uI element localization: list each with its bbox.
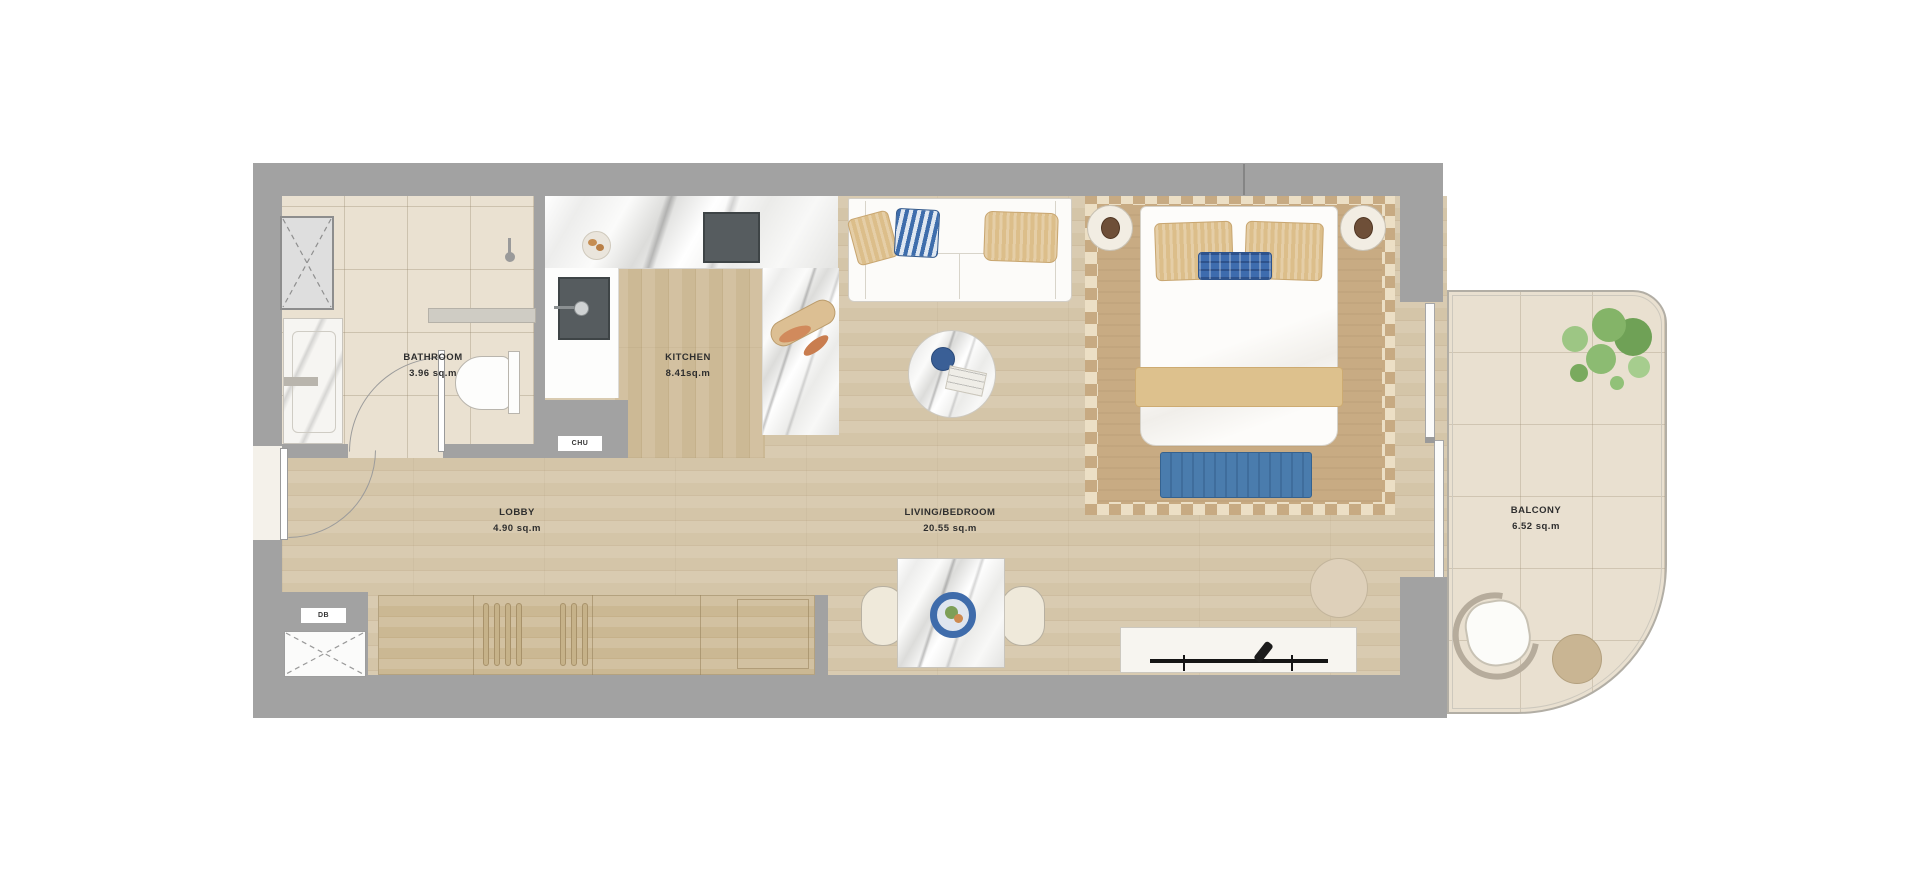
- shower: [283, 318, 343, 444]
- chu-label-text: CHU: [572, 440, 589, 447]
- nightstand: [1340, 205, 1386, 251]
- bed-plaid-pillow: [1198, 252, 1272, 280]
- vase-icon: [1101, 217, 1120, 239]
- balcony-side-table: [1552, 634, 1602, 684]
- room-area: 3.96 sq.m: [367, 366, 499, 382]
- shaft-cross-icon: [285, 632, 364, 675]
- wardrobe-divider: [473, 595, 474, 675]
- vanity-shelf: [428, 308, 536, 323]
- room-label-bathroom: BATHROOM 3.96 sq.m: [367, 350, 499, 381]
- wardrobe-divider: [592, 595, 593, 675]
- vase-icon: [1354, 217, 1373, 239]
- wall-right-upper: [1400, 196, 1443, 302]
- room-area: 8.41sq.m: [628, 366, 748, 382]
- sofa-pillow: [983, 211, 1059, 264]
- stove: [703, 212, 760, 263]
- room-label-balcony: BALCONY 6.52 sq.m: [1476, 503, 1596, 534]
- magazine: [945, 365, 987, 396]
- balcony-door-latch: [1425, 437, 1435, 443]
- kitchen-sink: [558, 277, 610, 340]
- wall-top: [253, 163, 1443, 196]
- room-name: LIVING/BEDROOM: [870, 505, 1030, 521]
- wall-bottom: [253, 675, 1447, 718]
- faucet-stem: [508, 238, 511, 253]
- hanger-bar: [516, 603, 522, 666]
- bed-blanket: [1135, 367, 1343, 407]
- tv-console: [1120, 627, 1357, 673]
- balcony-door-panel: [1425, 303, 1435, 443]
- hanger-bar: [571, 603, 577, 666]
- toilet-tank: [508, 351, 520, 414]
- croissant: [596, 244, 604, 251]
- plate-icon: [930, 592, 976, 638]
- sink-faucet-stem: [554, 306, 574, 309]
- coffee-table: [908, 330, 996, 418]
- wall-stub-wardrobe: [815, 595, 828, 677]
- wall-bathroom-kitchen: [534, 196, 545, 458]
- db-label-text: DB: [318, 612, 329, 619]
- room-label-living-bedroom: LIVING/BEDROOM 20.55 sq.m: [870, 505, 1030, 536]
- tv-foot: [1183, 655, 1185, 671]
- wall-right-lower: [1400, 577, 1447, 718]
- hanger-bar: [494, 603, 500, 666]
- pouf: [1310, 558, 1368, 618]
- wardrobe-desk-square: [737, 599, 809, 669]
- shaft-cross-icon: [282, 218, 332, 308]
- room-label-lobby: LOBBY 4.90 sq.m: [457, 505, 577, 536]
- room-name: LOBBY: [457, 505, 577, 521]
- room-name: BALCONY: [1476, 503, 1596, 519]
- nightstand: [1087, 205, 1133, 251]
- floorplan-canvas: CHU DB: [0, 0, 1920, 892]
- kitchen-island: [762, 268, 839, 435]
- plate-icon: [582, 231, 611, 260]
- tv-screen: [1150, 659, 1328, 663]
- wall-bathroom-bottom-right: [443, 444, 535, 458]
- room-label-kitchen: KITCHEN 8.41sq.m: [628, 350, 748, 381]
- dining-chair: [1001, 586, 1045, 646]
- dining-table: [897, 558, 1005, 668]
- chu-label: CHU: [558, 436, 602, 451]
- hanger-bar: [560, 603, 566, 666]
- plant-icon: [1592, 308, 1626, 342]
- balcony-door-panel: [1434, 440, 1444, 578]
- hanger-bar: [582, 603, 588, 666]
- entry-door-leaf: [280, 448, 288, 540]
- sink-faucet-icon: [574, 301, 589, 316]
- hanger-bar: [483, 603, 489, 666]
- shaft-lower: [284, 631, 366, 677]
- sofa-seat-divider: [959, 253, 960, 299]
- shower-shelf: [284, 377, 318, 386]
- shaft-upper: [280, 216, 334, 310]
- room-area: 6.52 sq.m: [1476, 519, 1596, 535]
- wardrobe-divider: [700, 595, 701, 675]
- room-area: 20.55 sq.m: [870, 521, 1030, 537]
- food-item: [954, 614, 963, 623]
- room-name: KITCHEN: [628, 350, 748, 366]
- db-label: DB: [301, 608, 346, 623]
- room-name: BATHROOM: [367, 350, 499, 366]
- entry-threshold: [253, 446, 282, 540]
- tv-foot: [1291, 655, 1293, 671]
- hanger-bar: [505, 603, 511, 666]
- faucet-icon: [505, 252, 515, 262]
- wall-joint-line: [1243, 164, 1245, 195]
- bed-bench: [1160, 452, 1312, 498]
- room-area: 4.90 sq.m: [457, 521, 577, 537]
- sofa-pillow-striped: [894, 208, 940, 258]
